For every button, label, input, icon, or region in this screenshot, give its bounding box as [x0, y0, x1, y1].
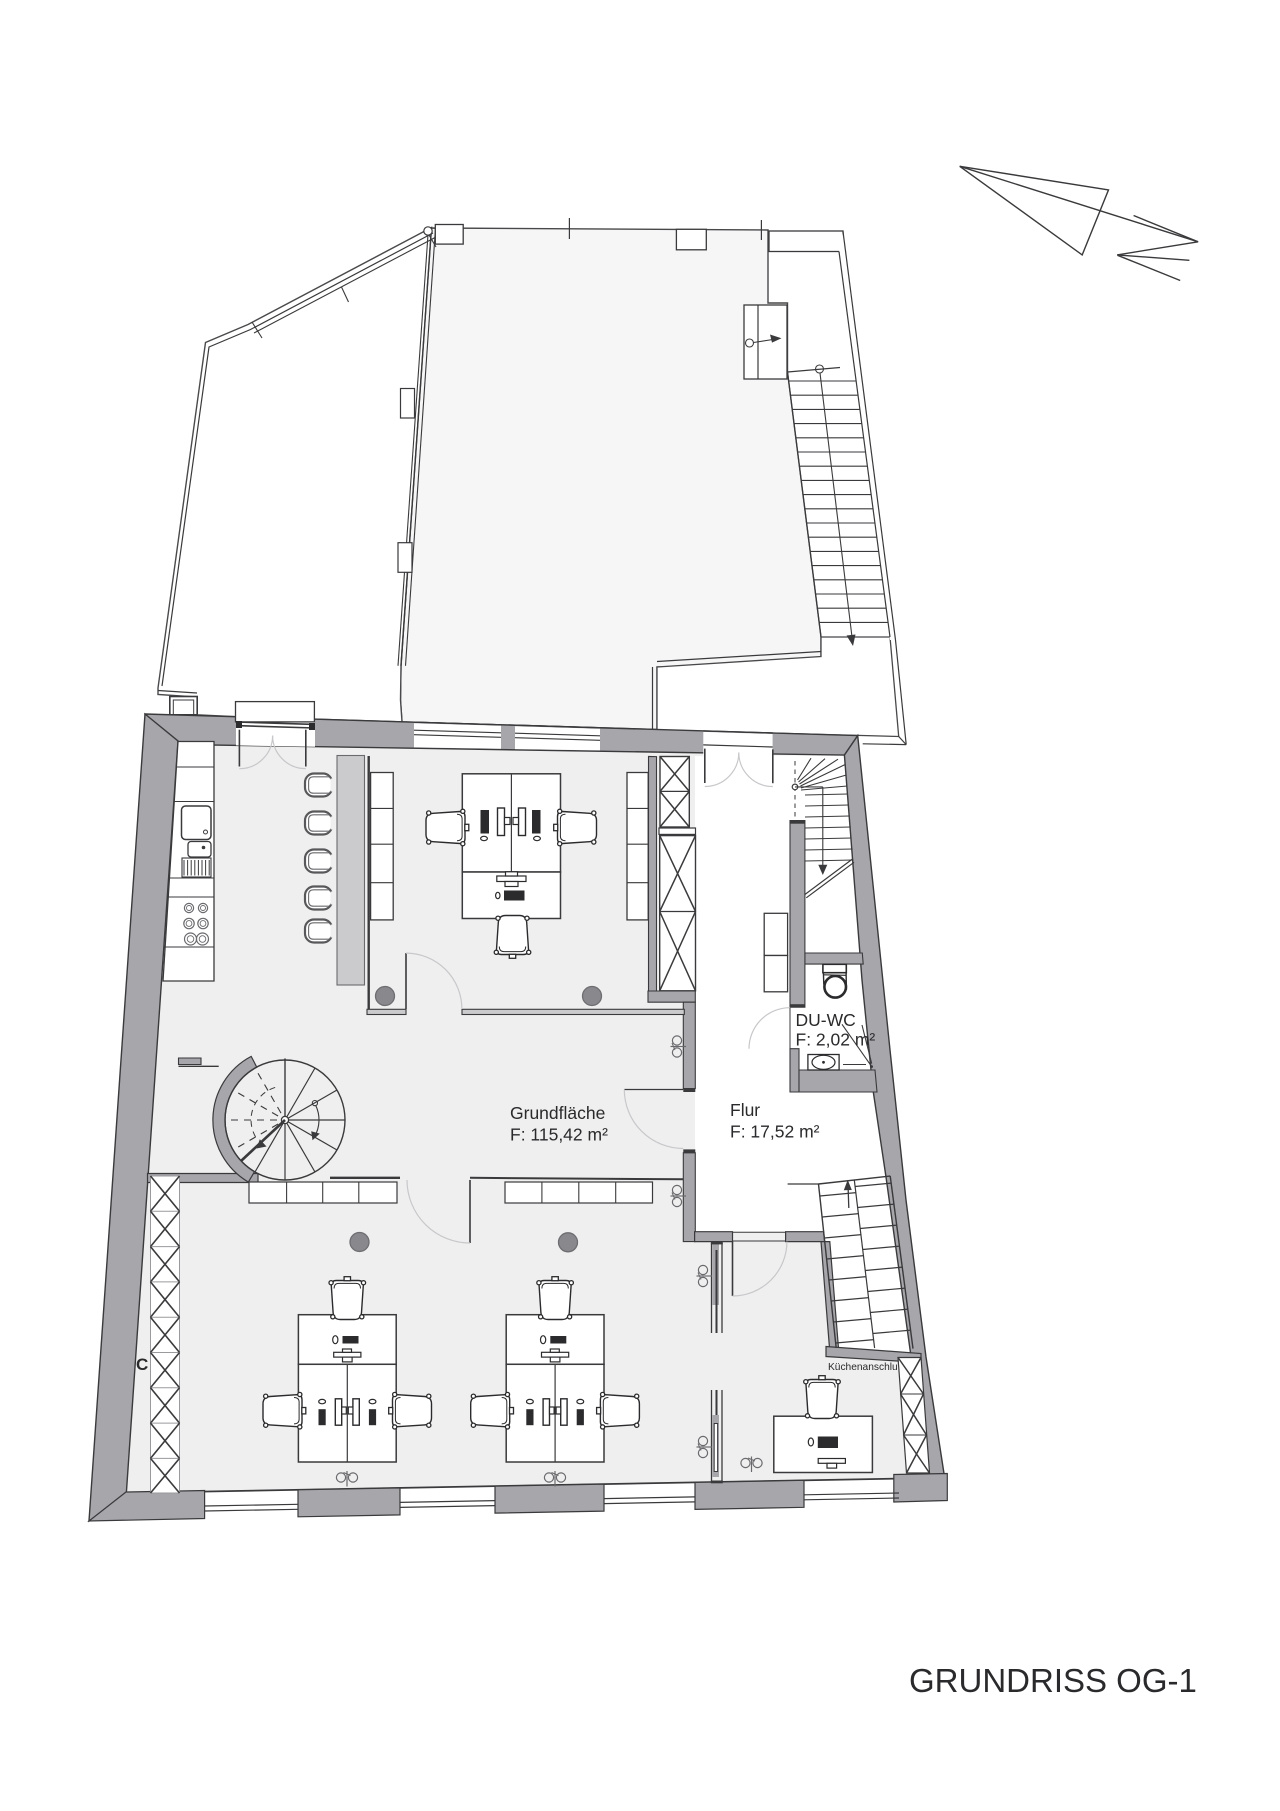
svg-text:F: 2,02 m²: F: 2,02 m² [796, 1030, 876, 1050]
svg-text:DU-WC: DU-WC [796, 1010, 856, 1030]
svg-text:GRUNDRISS OG-1: GRUNDRISS OG-1 [909, 1662, 1197, 1699]
svg-text:Küchenanschlu: Küchenanschlu [828, 1362, 898, 1373]
svg-text:Flur: Flur [730, 1100, 760, 1120]
svg-text:F: 115,42 m²: F: 115,42 m² [510, 1125, 608, 1145]
svg-text:F: 17,52 m²: F: 17,52 m² [730, 1122, 820, 1142]
svg-text:C: C [136, 1355, 148, 1374]
svg-text:Grundfläche: Grundfläche [510, 1103, 605, 1123]
